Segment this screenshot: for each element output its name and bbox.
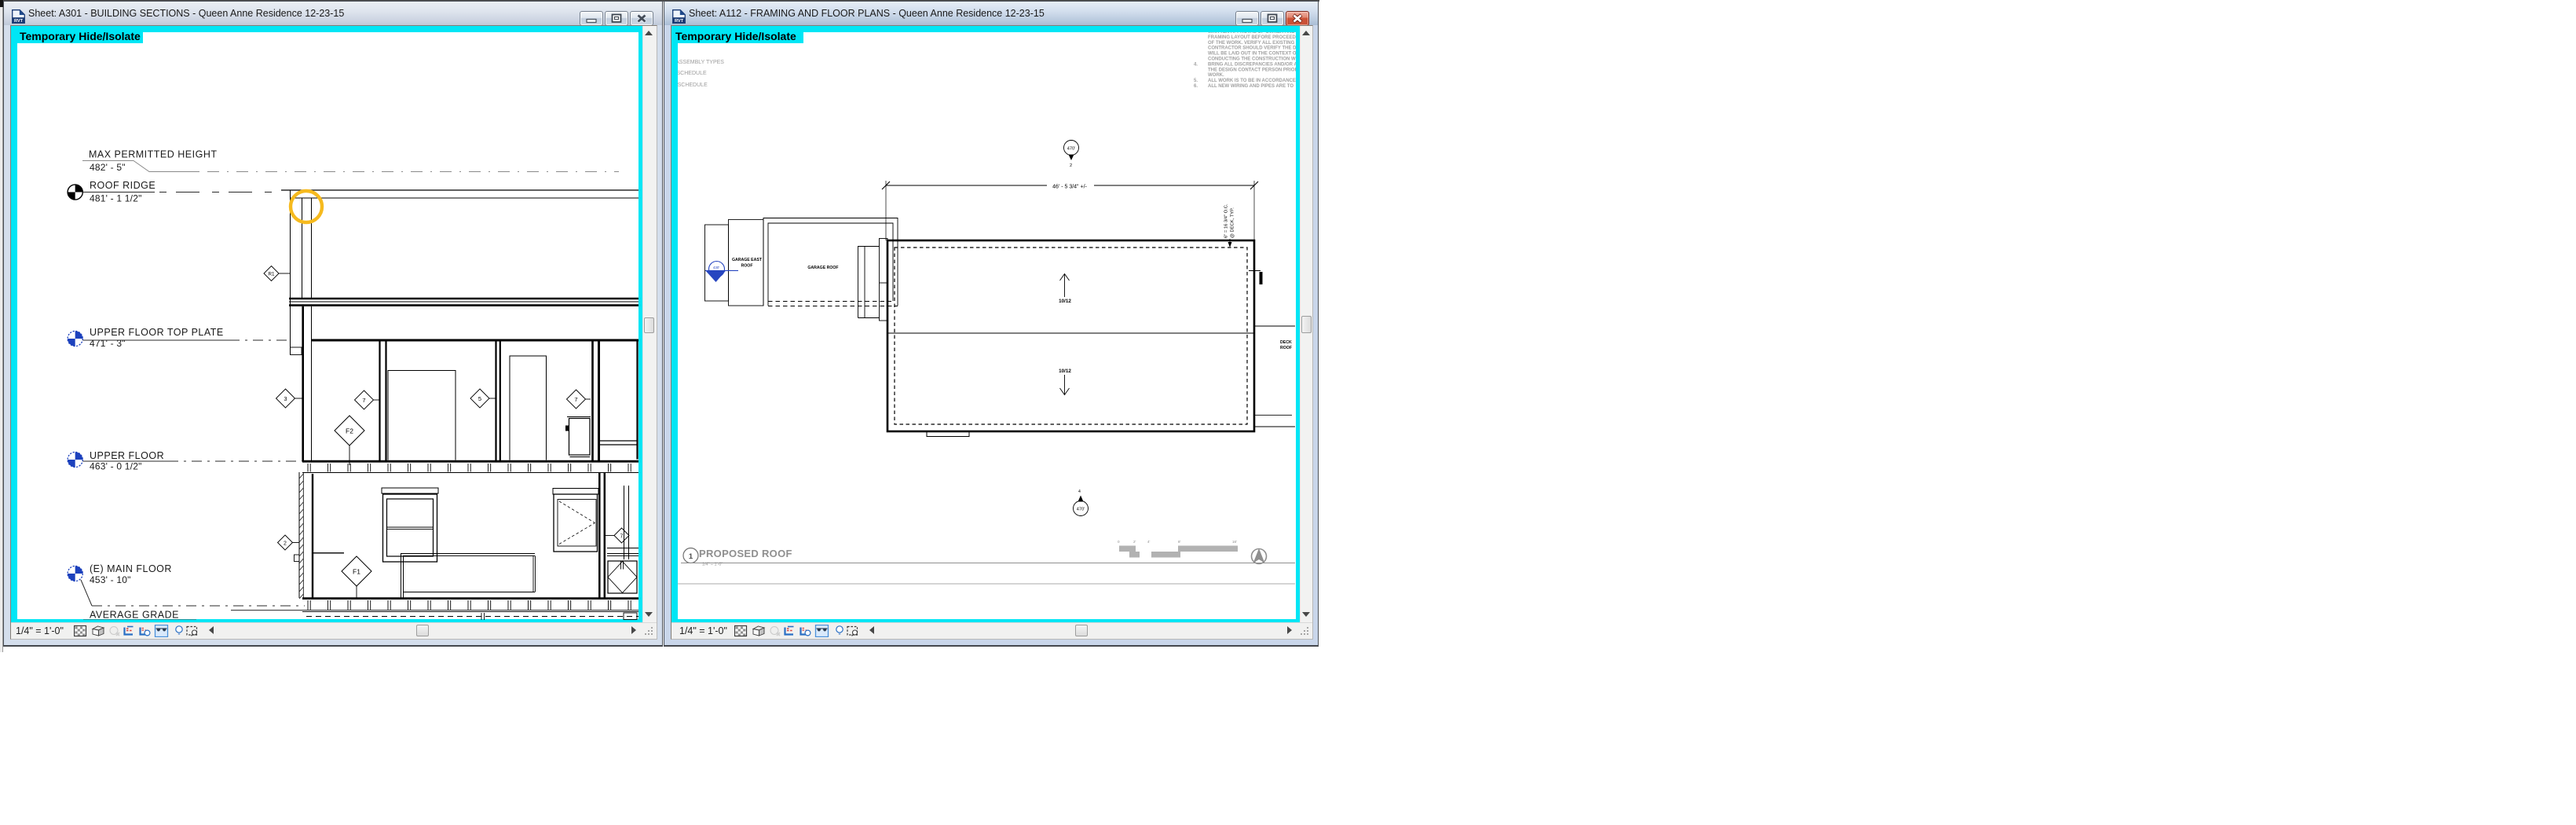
svg-text:482' - 5": 482' - 5" <box>90 162 126 173</box>
svg-text:PROPOSED ROOF: PROPOSED ROOF <box>699 548 792 559</box>
svg-text:ROOF: ROOF <box>1280 346 1292 350</box>
svg-text:ROOF: ROOF <box>741 264 753 269</box>
svg-text:1/4" = 1'-0": 1/4" = 1'-0" <box>702 563 723 567</box>
svg-text:THE DESIGN CONTACT PERSON PRIO: THE DESIGN CONTACT PERSON PRIOR TO <box>1208 68 1296 72</box>
svg-text:463' - 0 1/2": 463' - 0 1/2" <box>90 461 142 472</box>
svg-text:4': 4' <box>1147 540 1151 544</box>
svg-text:BRING ALL DISCREPANCIES AND/OR: BRING ALL DISCREPANCIES AND/OR AMB <box>1208 62 1296 67</box>
svg-text:LL ASSEMBLY TYPES: LL ASSEMBLY TYPES <box>678 60 724 65</box>
svg-text:CONDUCTING THE CONSTRUCTION WO: CONDUCTING THE CONSTRUCTION WORK. <box>1208 57 1296 62</box>
svg-text:430': 430' <box>713 266 720 269</box>
svg-text:WRITTEN APPROVAL OF OWNER AND: WRITTEN APPROVAL OF OWNER AND <box>1208 32 1295 35</box>
svg-text:0: 0 <box>1118 540 1120 544</box>
svg-text:453' - 10": 453' - 10" <box>90 574 131 585</box>
svg-text:10/12: 10/12 <box>1059 368 1071 374</box>
svg-text:2: 2 <box>1070 163 1072 168</box>
svg-text:ALL NEW WIRING AND PIPES ARE T: ALL NEW WIRING AND PIPES ARE TO <box>1208 84 1293 89</box>
svg-text:1: 1 <box>689 552 693 561</box>
svg-text:INE SCHEDULE: INE SCHEDULE <box>678 82 708 88</box>
svg-text:470': 470' <box>1077 508 1085 512</box>
svg-text:481' - 1 1/2": 481' - 1 1/2" <box>90 193 142 204</box>
svg-text:470': 470' <box>1067 147 1075 152</box>
svg-text:MAX PERMITTED HEIGHT: MAX PERMITTED HEIGHT <box>89 149 217 160</box>
svg-text:FRAMING LAYOUT BEFORE PROCEEDI: FRAMING LAYOUT BEFORE PROCEEDING, C <box>1208 35 1296 40</box>
svg-text:R1: R1 <box>268 272 275 277</box>
svg-text:OF THE WORK. VERIFY ALL EXISTI: OF THE WORK. VERIFY ALL EXISTING <box>1208 41 1295 46</box>
svg-text:2': 2' <box>1133 540 1136 544</box>
svg-text:RVT: RVT <box>14 19 24 24</box>
svg-text:8': 8' <box>1178 540 1181 544</box>
svg-text:UPPER FLOOR TOP PLATE: UPPER FLOOR TOP PLATE <box>90 327 224 338</box>
svg-text:ROOF RIDGE: ROOF RIDGE <box>90 180 156 191</box>
svg-text:ALL WORK IS TO BE IN ACCORDANC: ALL WORK IS TO BE IN ACCORDANCE WI <box>1208 79 1296 83</box>
svg-text:@ DECK, TYP.: @ DECK, TYP. <box>1231 207 1235 238</box>
svg-text:(E) MAIN FLOOR: (E) MAIN FLOOR <box>90 563 172 574</box>
svg-text:471' - 3": 471' - 3" <box>90 338 126 349</box>
svg-text:46' - 5 3/4" +/-: 46' - 5 3/4" +/- <box>1052 185 1087 190</box>
svg-text:10/12: 10/12 <box>1059 299 1071 304</box>
svg-text:7: 7 <box>620 533 624 539</box>
svg-text:6.: 6. <box>1194 84 1198 89</box>
svg-text:F1: F1 <box>353 568 360 576</box>
svg-text:F2: F2 <box>346 427 353 435</box>
svg-text:5: 5 <box>478 395 481 402</box>
svg-text:4.: 4. <box>1194 62 1198 67</box>
svg-text:16': 16' <box>1232 540 1237 544</box>
svg-text:DECK: DECK <box>1280 340 1292 345</box>
svg-text:5.: 5. <box>1194 79 1198 83</box>
svg-text:UPPER FLOOR: UPPER FLOOR <box>90 450 164 461</box>
svg-text:AVERAGE GRADE: AVERAGE GRADE <box>90 610 179 621</box>
svg-text:3: 3 <box>284 395 287 402</box>
svg-text:2: 2 <box>284 541 287 546</box>
svg-text:LE SCHEDULE: LE SCHEDULE <box>678 71 707 76</box>
svg-text:7: 7 <box>362 397 365 404</box>
svg-text:GARAGE EAST: GARAGE EAST <box>732 258 763 262</box>
svg-text:7: 7 <box>574 396 577 403</box>
svg-text:GARAGE ROOF: GARAGE ROOF <box>807 266 838 270</box>
svg-text:CONTRACTOR SHOULD VERIFY THE D: CONTRACTOR SHOULD VERIFY THE DIMEN <box>1208 46 1296 51</box>
svg-text:WILL BE LAID OUT IN THE CONTEX: WILL BE LAID OUT IN THE CONTEXT OF <box>1208 52 1296 57</box>
svg-text:6" = 16 3/4" O.C.: 6" = 16 3/4" O.C. <box>1224 203 1229 238</box>
svg-text:4: 4 <box>1078 489 1081 494</box>
svg-text:WORK.: WORK. <box>1208 73 1224 78</box>
svg-text:RVT: RVT <box>675 19 684 24</box>
